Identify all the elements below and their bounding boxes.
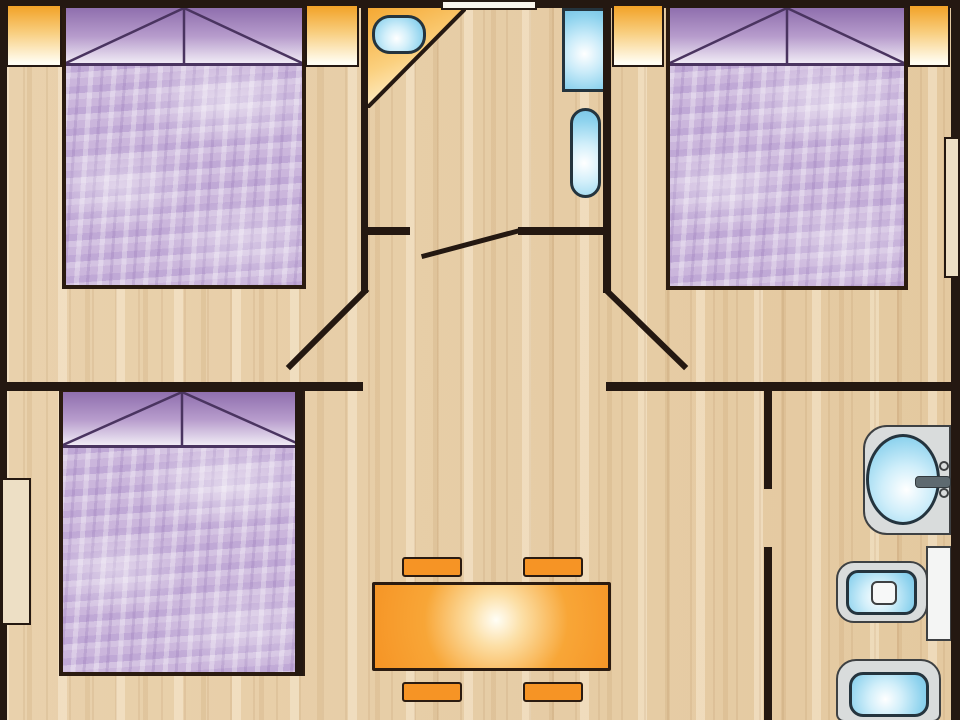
wall-bathroom2-left-upper: [764, 391, 772, 489]
chair-4: [523, 682, 583, 702]
window-bedroom2-corner: [908, 4, 950, 67]
wall-bathroom2-left-lower: [764, 547, 772, 720]
bed-pillows: [66, 8, 302, 66]
bed-bedroom-top-left: [62, 4, 306, 289]
chair-1: [402, 557, 462, 577]
toilet-cistern: [926, 546, 952, 641]
window-bedroom1-right: [305, 4, 359, 67]
window-right-wall: [944, 137, 960, 278]
wall-top-right-segment: [537, 0, 960, 8]
wall-bathroom-bottom-left: [361, 227, 410, 235]
pillow-lines-icon: [66, 8, 302, 63]
bed-bedroom-bottom-left: [59, 388, 305, 676]
bed-duvet: [63, 448, 301, 672]
window-bedroom1-left: [6, 4, 62, 67]
wall-bathroom-bedroom2: [603, 0, 611, 293]
wc-toilet: [570, 108, 601, 198]
bed-bedroom-top-right: [666, 4, 908, 290]
wall-top-left-segment: [0, 0, 441, 8]
faucet-knob-top-icon: [939, 461, 949, 471]
dining-table: [372, 582, 611, 671]
wall-right-exterior: [951, 0, 960, 720]
wall-bedroom1-bathroom: [361, 0, 368, 293]
chair-3: [402, 682, 462, 702]
wall-bedroom3-right: [295, 391, 303, 676]
bed-pillows: [63, 392, 301, 448]
toilet-flush-button: [871, 581, 897, 605]
bed-duvet: [670, 66, 904, 286]
bidet-inner: [849, 672, 929, 717]
corner-washbasin: [372, 15, 426, 54]
pillow-lines-icon: [63, 392, 301, 445]
window-bedroom2-left: [612, 4, 664, 67]
wall-hallway-right: [606, 382, 960, 391]
entry-door: [441, 0, 537, 10]
wall-bathroom-bottom-right: [518, 227, 611, 235]
wall-hallway-left: [0, 382, 363, 391]
window-left-wall: [1, 478, 31, 625]
shower: [562, 8, 607, 92]
faucet-icon: [915, 476, 951, 488]
pillow-lines-icon: [670, 8, 904, 63]
bed-duvet: [66, 66, 302, 285]
floor-plan: [0, 0, 960, 720]
bed-pillows: [670, 8, 904, 66]
faucet-knob-bottom-icon: [939, 488, 949, 498]
chair-2: [523, 557, 583, 577]
